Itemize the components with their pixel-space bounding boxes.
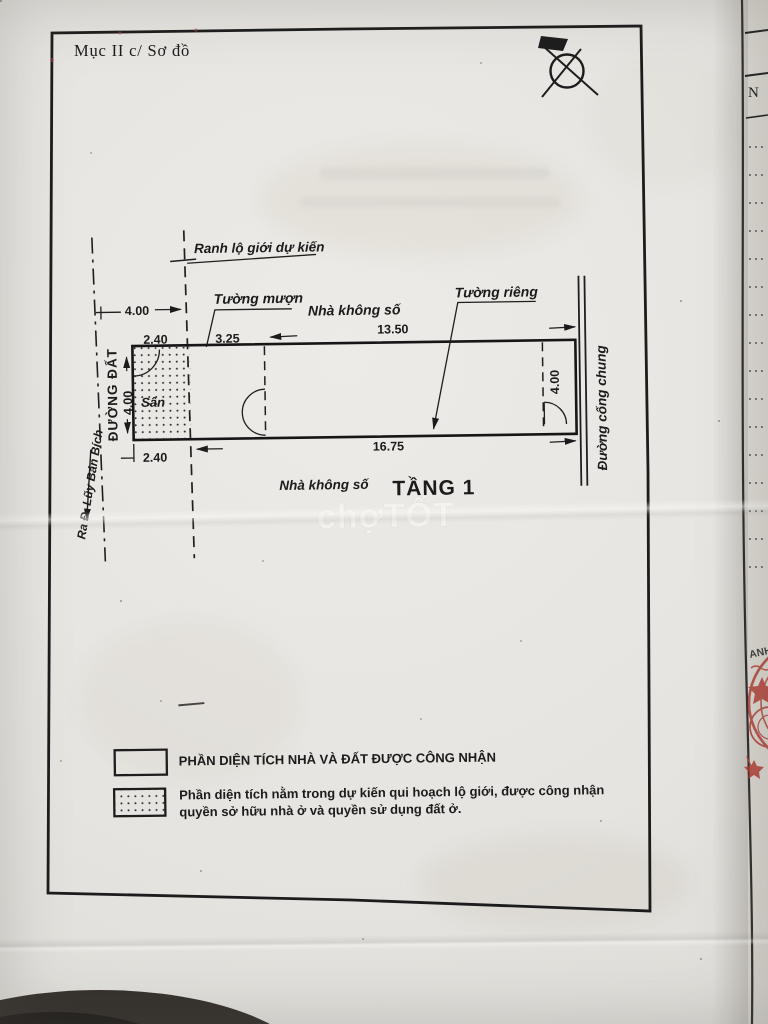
yard-area bbox=[134, 347, 191, 439]
double-door-arc-bottom bbox=[242, 412, 265, 435]
page-fold-edge bbox=[742, 0, 752, 1024]
label-neighbor-top: Nhà không số bbox=[308, 301, 402, 318]
page-frame bbox=[48, 26, 650, 911]
section-label: Mục II c/ Sơ đồ bbox=[74, 41, 190, 60]
label-to-street: Ra Đ. Lũy Bán Bích bbox=[74, 429, 106, 541]
label-boundary: Ranh lộ giới dự kiến bbox=[194, 239, 325, 256]
legend-text-planning-line1: Phần diện tích nằm trong dự kiến qui hoạ… bbox=[179, 782, 604, 802]
dim-arrow bbox=[550, 441, 576, 442]
private-wall-leader bbox=[432, 301, 538, 428]
stamp-text: ANH bbox=[748, 644, 768, 660]
legend: PHẦN DIỆN TÍCH NHÀ VÀ ĐẤT ĐƯỢC CÔNG NHẬN… bbox=[114, 744, 605, 820]
label-neighbor-bottom: Nhà không số bbox=[279, 477, 369, 493]
legend-text-recognized: PHẦN DIỆN TÍCH NHÀ VÀ ĐẤT ĐƯỢC CÔNG NHẬN bbox=[179, 750, 496, 769]
label-yard: Sân bbox=[141, 395, 165, 410]
dotted-leader-rows bbox=[749, 147, 763, 567]
road-centerline bbox=[92, 237, 106, 561]
dim-main-segment: 13.50 bbox=[377, 322, 409, 336]
dust-specks bbox=[0, 0, 2, 2]
partition-line-left bbox=[264, 346, 265, 436]
label-dirt-road: ĐƯỜNG ĐẤT bbox=[104, 348, 120, 441]
house-outline bbox=[132, 340, 576, 440]
dim-total-depth: 16.75 bbox=[373, 439, 405, 453]
adjacent-table-line bbox=[745, 73, 768, 76]
double-door-arc-top bbox=[242, 389, 265, 412]
floor-title: TẦNG 1 bbox=[392, 476, 475, 500]
diagram-canvas: Mục II c/ Sơ đồ Ra Đ. Lũy Bán Bích ĐƯỜNG… bbox=[0, 0, 768, 1024]
scanned-document-photo: chợTỐT Mục II c/ Sơ đồ bbox=[0, 0, 768, 1024]
dim-arrow bbox=[270, 336, 297, 337]
dim-arrow bbox=[549, 327, 575, 328]
dim-yard-top: 2.40 bbox=[143, 333, 168, 347]
legend-swatch-planning bbox=[114, 789, 165, 817]
adjacent-table-line bbox=[746, 115, 768, 118]
partition-line-right bbox=[542, 342, 543, 432]
stamp-small-star bbox=[744, 760, 764, 779]
dim-road-width: 4.00 bbox=[125, 304, 150, 318]
rear-door-arc bbox=[544, 402, 566, 424]
drain-line bbox=[584, 276, 587, 486]
legend-text-planning-line2: quyền sở hữu nhà ở và quyền sử dụng đất … bbox=[179, 801, 461, 819]
floor-plan: Ra Đ. Lũy Bán Bích ĐƯỜNG ĐẤT Ranh lộ giớ… bbox=[70, 224, 613, 706]
dim-front-segment: 3.25 bbox=[215, 332, 240, 346]
adjacent-page: N ANH bbox=[742, 0, 768, 1024]
dim-house-width: 4.00 bbox=[548, 370, 562, 395]
legend-swatch-recognized bbox=[115, 750, 167, 776]
label-borrowed-wall: Tường mượn bbox=[214, 290, 304, 307]
adjacent-table-line bbox=[745, 30, 768, 33]
label-common-drain: Đường cống chung bbox=[593, 344, 610, 470]
drain-line bbox=[578, 276, 581, 486]
pen-smudge bbox=[178, 703, 204, 705]
boundary-tick bbox=[170, 259, 196, 261]
dim-yard-bottom: 2.40 bbox=[143, 451, 168, 465]
north-arrow-icon bbox=[538, 36, 598, 97]
dim-yard-depth: 4.00 bbox=[121, 391, 135, 416]
label-private-wall: Tường riêng bbox=[455, 283, 539, 300]
adjacent-page-letter: N bbox=[748, 85, 759, 101]
